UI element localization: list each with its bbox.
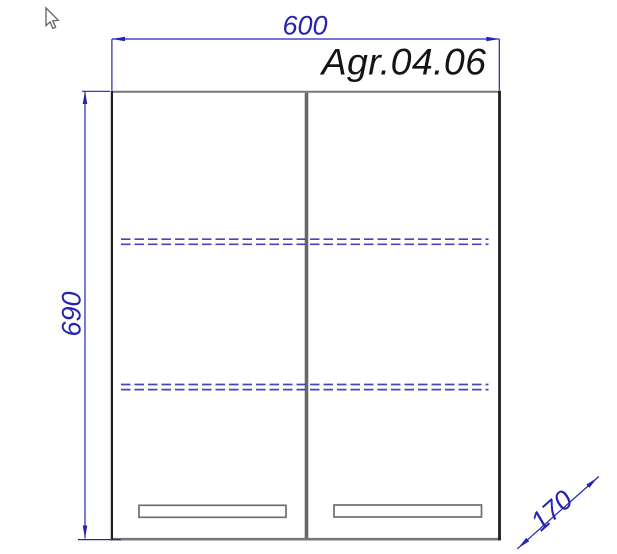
depth-arrow-upper [586,478,597,488]
height-arrow-bottom [83,526,88,539]
mouse-cursor-icon [46,8,58,28]
width-arrow-left [112,37,125,42]
height-arrow-top [83,91,88,104]
width-dimension-label: 600 [282,13,327,40]
door-handles [139,505,482,517]
drawing-linework [0,0,617,554]
left-door-handle [139,505,286,517]
right-door-handle [334,505,482,517]
width-arrow-right [486,37,499,42]
model-name-label: Agr.04.06 [322,44,487,82]
depth-arrow-lower [518,538,529,548]
height-dimension-label: 690 [59,291,86,336]
cabinet-technical-drawing: 600 690 170 Agr.04.06 [0,0,617,554]
cabinet-outline [111,91,501,541]
